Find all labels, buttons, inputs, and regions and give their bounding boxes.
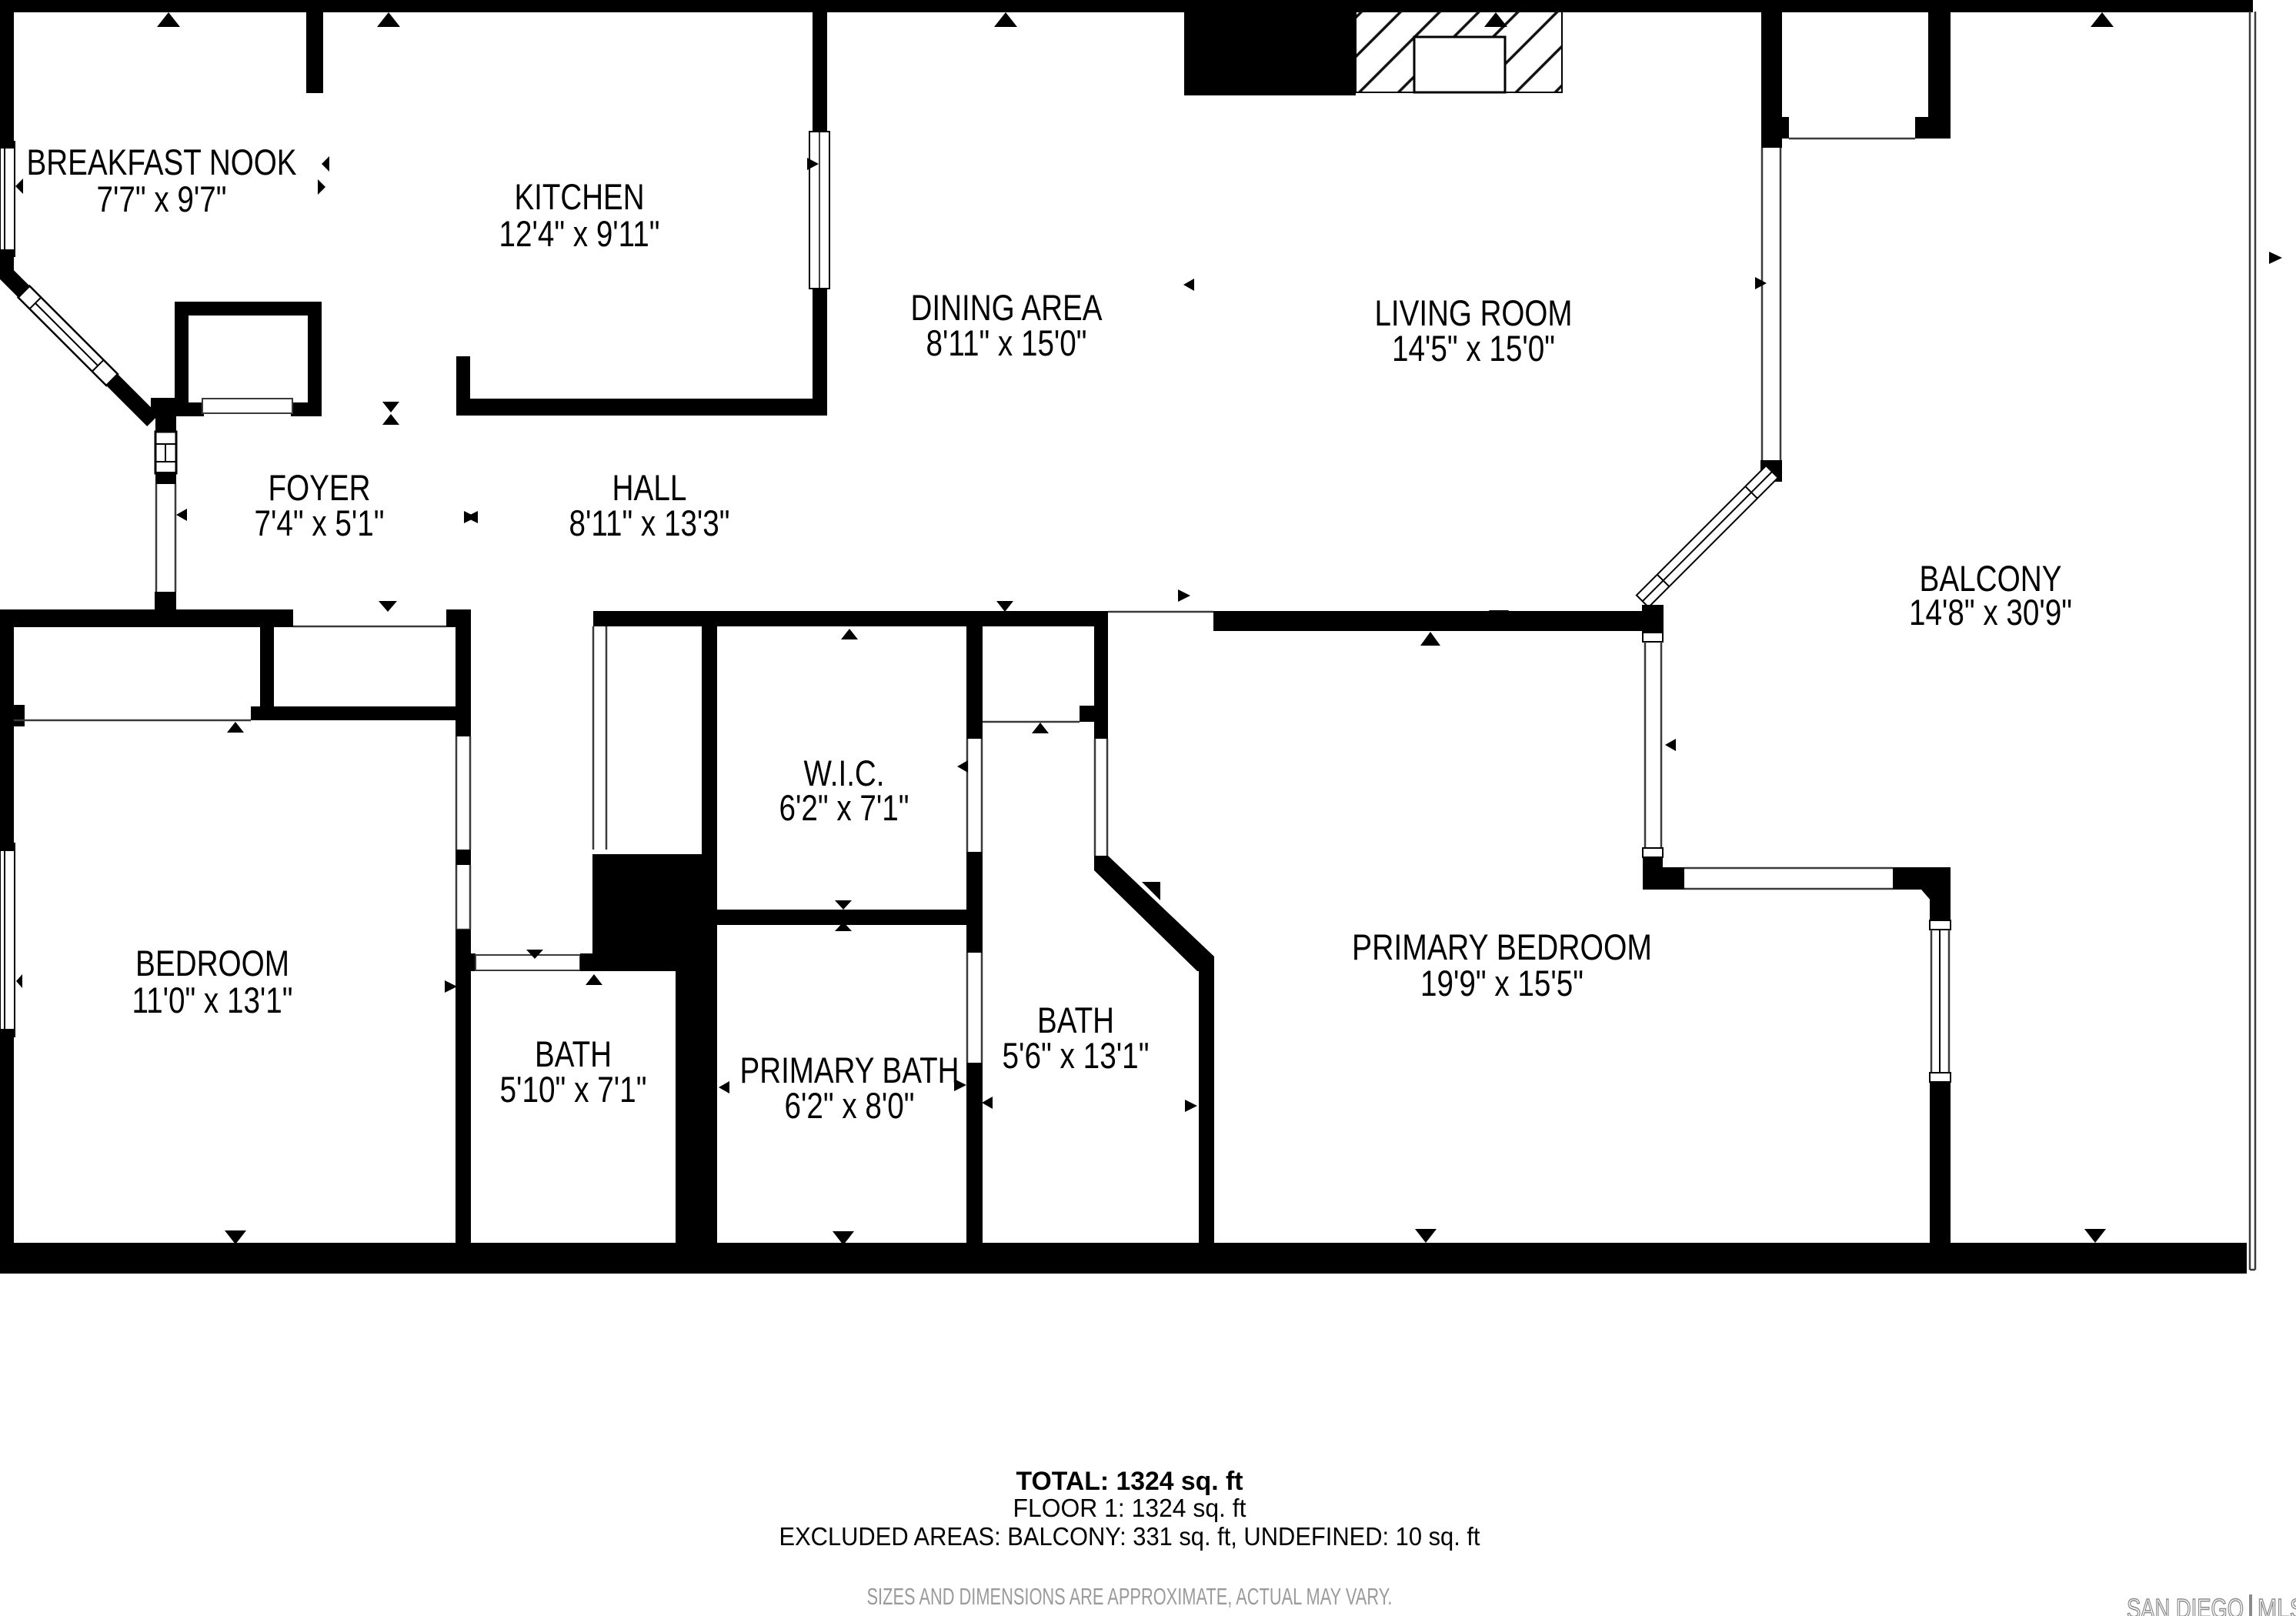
- svg-text:PRIMARY BEDROOM: PRIMARY BEDROOM: [1352, 927, 1652, 967]
- svg-text:BREAKFAST NOOK: BREAKFAST NOOK: [27, 142, 297, 182]
- svg-text:6'2" x 7'1": 6'2" x 7'1": [779, 787, 909, 828]
- svg-text:FLOOR 1: 1324 sq. ft: FLOOR 1: 1324 sq. ft: [1013, 1494, 1246, 1522]
- svg-text:5'10" x 7'1": 5'10" x 7'1": [500, 1069, 647, 1110]
- svg-text:SAN DIEGO: SAN DIEGO: [2127, 1593, 2244, 1616]
- svg-text:14'8" x 30'9": 14'8" x 30'9": [1909, 592, 2072, 633]
- svg-text:MLS: MLS: [2258, 1593, 2296, 1616]
- svg-text:14'5" x 15'0": 14'5" x 15'0": [1392, 328, 1555, 369]
- svg-text:TOTAL: 1324 sq. ft: TOTAL: 1324 sq. ft: [1016, 1467, 1243, 1496]
- svg-text:5'6" x 13'1": 5'6" x 13'1": [1003, 1035, 1150, 1076]
- svg-text:12'4" x 9'11": 12'4" x 9'11": [499, 213, 660, 254]
- svg-text:SIZES AND DIMENSIONS ARE APPRO: SIZES AND DIMENSIONS ARE APPROXIMATE, AC…: [867, 1583, 1393, 1610]
- svg-text:19'9" x 15'5": 19'9" x 15'5": [1420, 963, 1584, 1003]
- svg-text:7'7" x 9'7": 7'7" x 9'7": [97, 179, 227, 219]
- svg-text:EXCLUDED AREAS: BALCONY: 331 s: EXCLUDED AREAS: BALCONY: 331 sq. ft, UND…: [779, 1522, 1480, 1551]
- svg-text:11'0" x 13'1": 11'0" x 13'1": [132, 980, 293, 1020]
- svg-text:8'11" x 15'0": 8'11" x 15'0": [926, 322, 1087, 363]
- svg-text:6'2" x 8'0": 6'2" x 8'0": [785, 1085, 915, 1126]
- svg-text:8'11" x 13'3": 8'11" x 13'3": [569, 502, 730, 543]
- svg-text:BEDROOM: BEDROOM: [135, 943, 289, 983]
- svg-text:7'4" x 5'1": 7'4" x 5'1": [255, 502, 385, 543]
- svg-text:KITCHEN: KITCHEN: [515, 176, 645, 217]
